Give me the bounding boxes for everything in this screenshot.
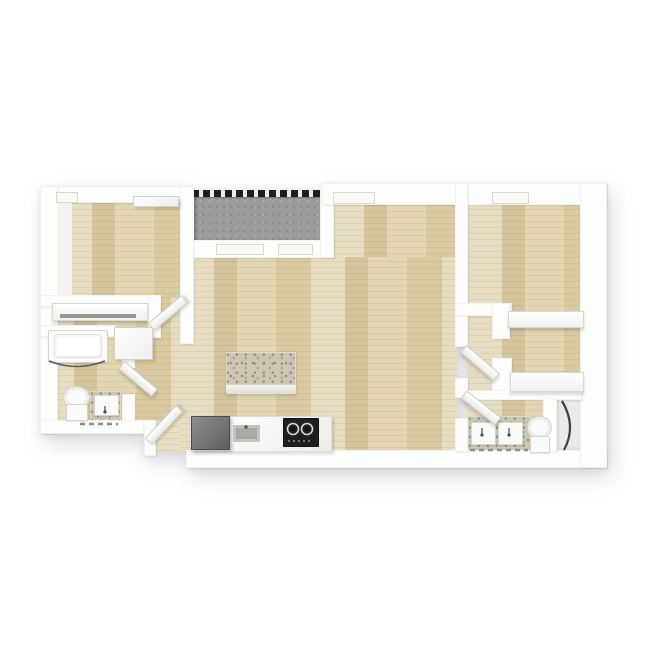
floor-living-upper <box>330 205 457 257</box>
wall-right-outer <box>580 183 607 468</box>
wall-bathroom-1-right-lower <box>122 394 135 422</box>
refrigerator <box>191 416 230 450</box>
wall-living-bedroom2-upper <box>455 183 468 347</box>
floor-plan-image <box>0 0 650 650</box>
vanity-2-sink-left <box>471 422 496 445</box>
utility-cabinet <box>114 327 153 360</box>
bathtub-basin <box>54 334 102 358</box>
bedroom-1-window-sill <box>133 196 179 207</box>
floor-balcony <box>194 196 322 242</box>
floor-plan <box>0 0 650 650</box>
stove-cooktop <box>283 418 319 447</box>
balcony-railing <box>192 188 324 198</box>
closet-2-shelf-lower <box>510 372 584 392</box>
toilet-1-tank <box>66 404 88 421</box>
bedroom-2-window <box>492 192 529 204</box>
kitchen-island-base <box>226 385 296 394</box>
vanity-1-sink <box>94 395 119 416</box>
wall-hall-kitchen-divider <box>180 186 194 344</box>
closet-1-rod <box>60 314 136 318</box>
wall-bathroom-1-bottom <box>40 420 144 434</box>
bedroom-1-window <box>56 192 78 203</box>
wall-living-bedroom2-lower <box>455 418 468 452</box>
wall-face-bedroom-1-left <box>58 203 72 297</box>
kitchen-island-top <box>226 352 296 385</box>
floor-bedroom-1 <box>58 203 180 297</box>
closet-2-shelf-upper <box>508 311 584 328</box>
vanity-2-sink-right <box>498 422 523 445</box>
kitchen-sink <box>233 425 260 442</box>
balcony-sliding-door-right <box>278 244 313 255</box>
living-room-window <box>333 192 375 204</box>
toilet-2-tank <box>530 436 550 453</box>
closet-1-shelf <box>52 303 148 321</box>
balcony-sliding-door-left <box>216 244 264 255</box>
shower-floor <box>557 400 582 450</box>
wall-balcony-bottom <box>194 240 334 258</box>
